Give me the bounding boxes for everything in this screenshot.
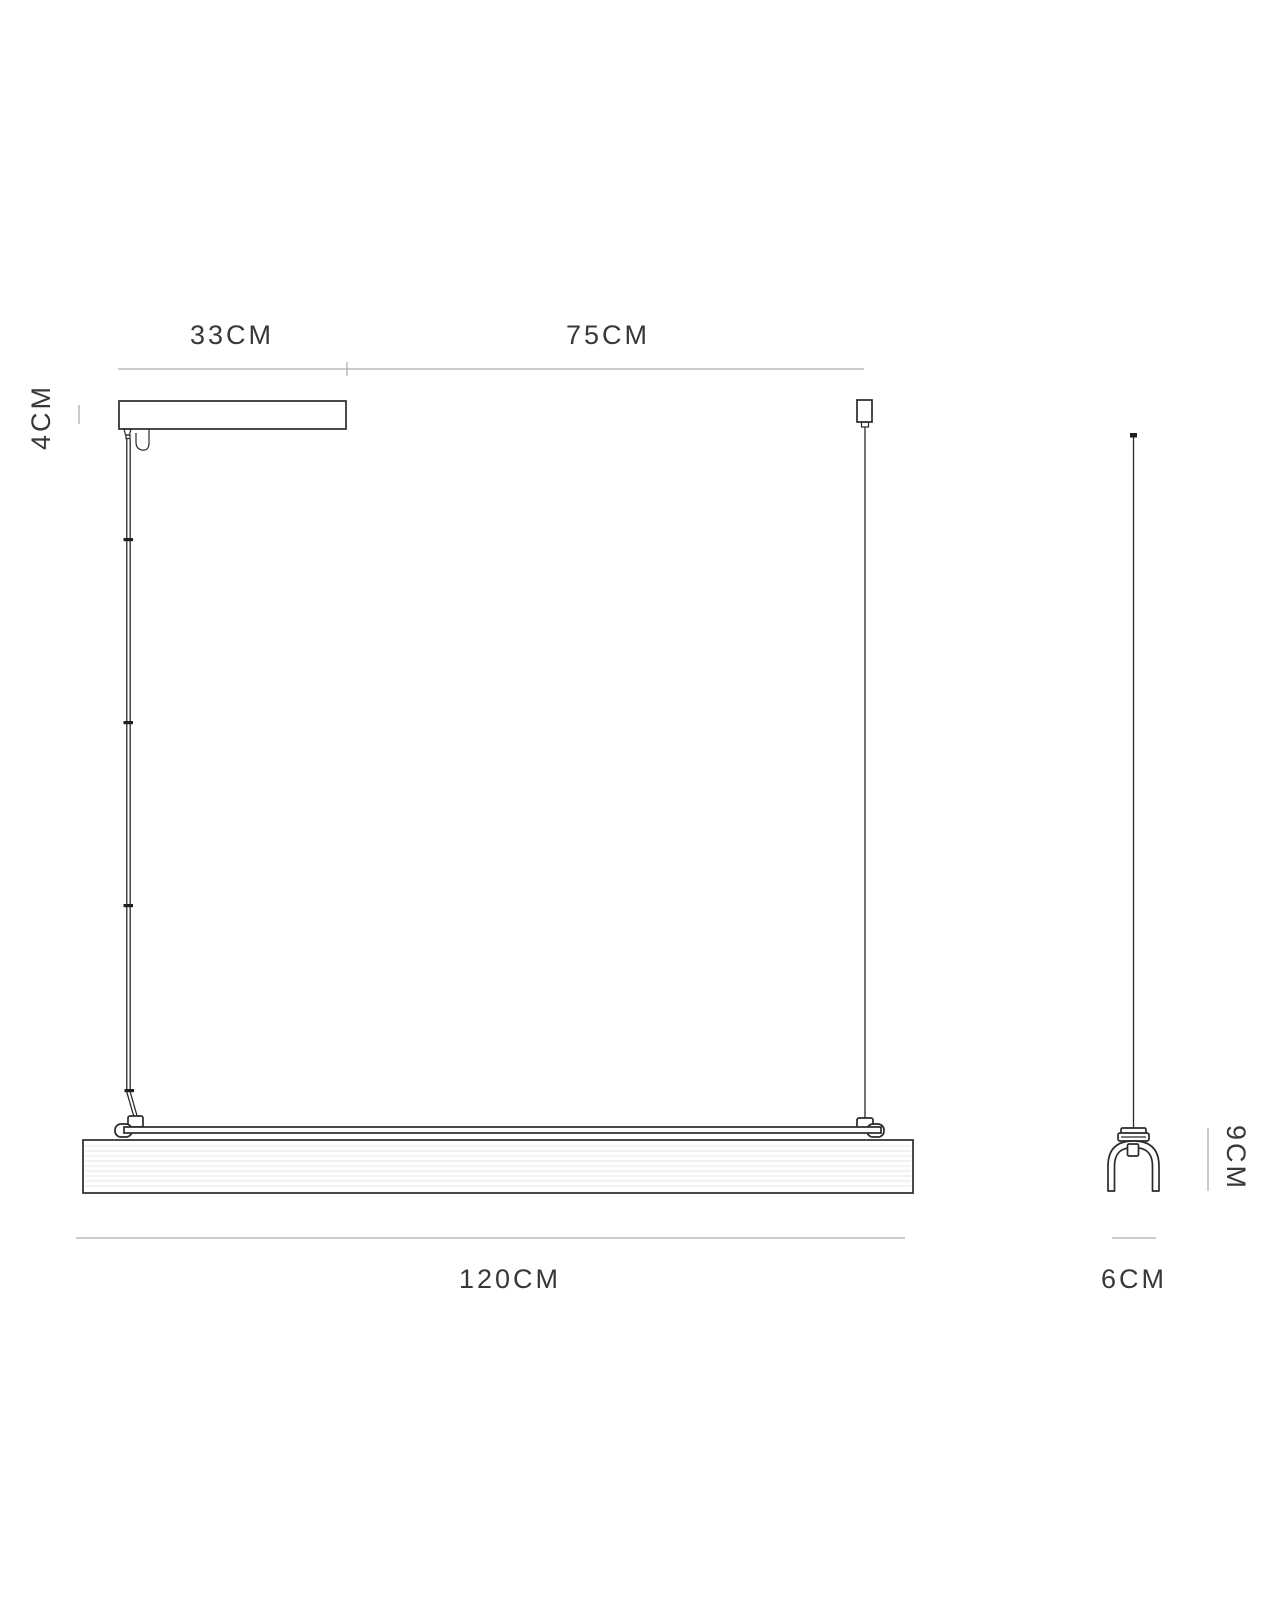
right-ceiling-attachment xyxy=(857,400,872,427)
side-view: 9CM 6CM xyxy=(1101,433,1251,1294)
wire-crimp xyxy=(124,721,134,724)
dimension-diagram-canvas: 33CM 75CM 4CM xyxy=(0,0,1280,1600)
wire-crimp xyxy=(124,904,134,907)
side-center-clip xyxy=(1128,1144,1139,1156)
diagram-page: 33CM 75CM 4CM xyxy=(0,0,1280,1600)
dimension-label-side-depth: 6CM xyxy=(1101,1264,1167,1294)
mounting-rail xyxy=(124,1127,881,1133)
cable-strain-relief-hook xyxy=(136,429,149,450)
side-wire-top-cap xyxy=(1130,433,1137,438)
front-view: 33CM 75CM 4CM xyxy=(26,320,913,1294)
wire-crimp xyxy=(125,1089,135,1092)
side-socket-cap xyxy=(1118,1128,1149,1141)
ceiling-canopy xyxy=(119,401,346,429)
dimension-label-fixture-length: 120CM xyxy=(459,1264,561,1294)
wire-crimp xyxy=(124,538,134,541)
dimension-label-side-height: 9CM xyxy=(1221,1125,1251,1191)
wire-connector xyxy=(124,429,131,435)
dimension-label-drop-span: 75CM xyxy=(566,320,650,350)
dimension-label-canopy-width: 33CM xyxy=(190,320,274,350)
wire-connector-tip xyxy=(126,435,130,439)
dimension-label-canopy-height: 4CM xyxy=(26,384,56,450)
